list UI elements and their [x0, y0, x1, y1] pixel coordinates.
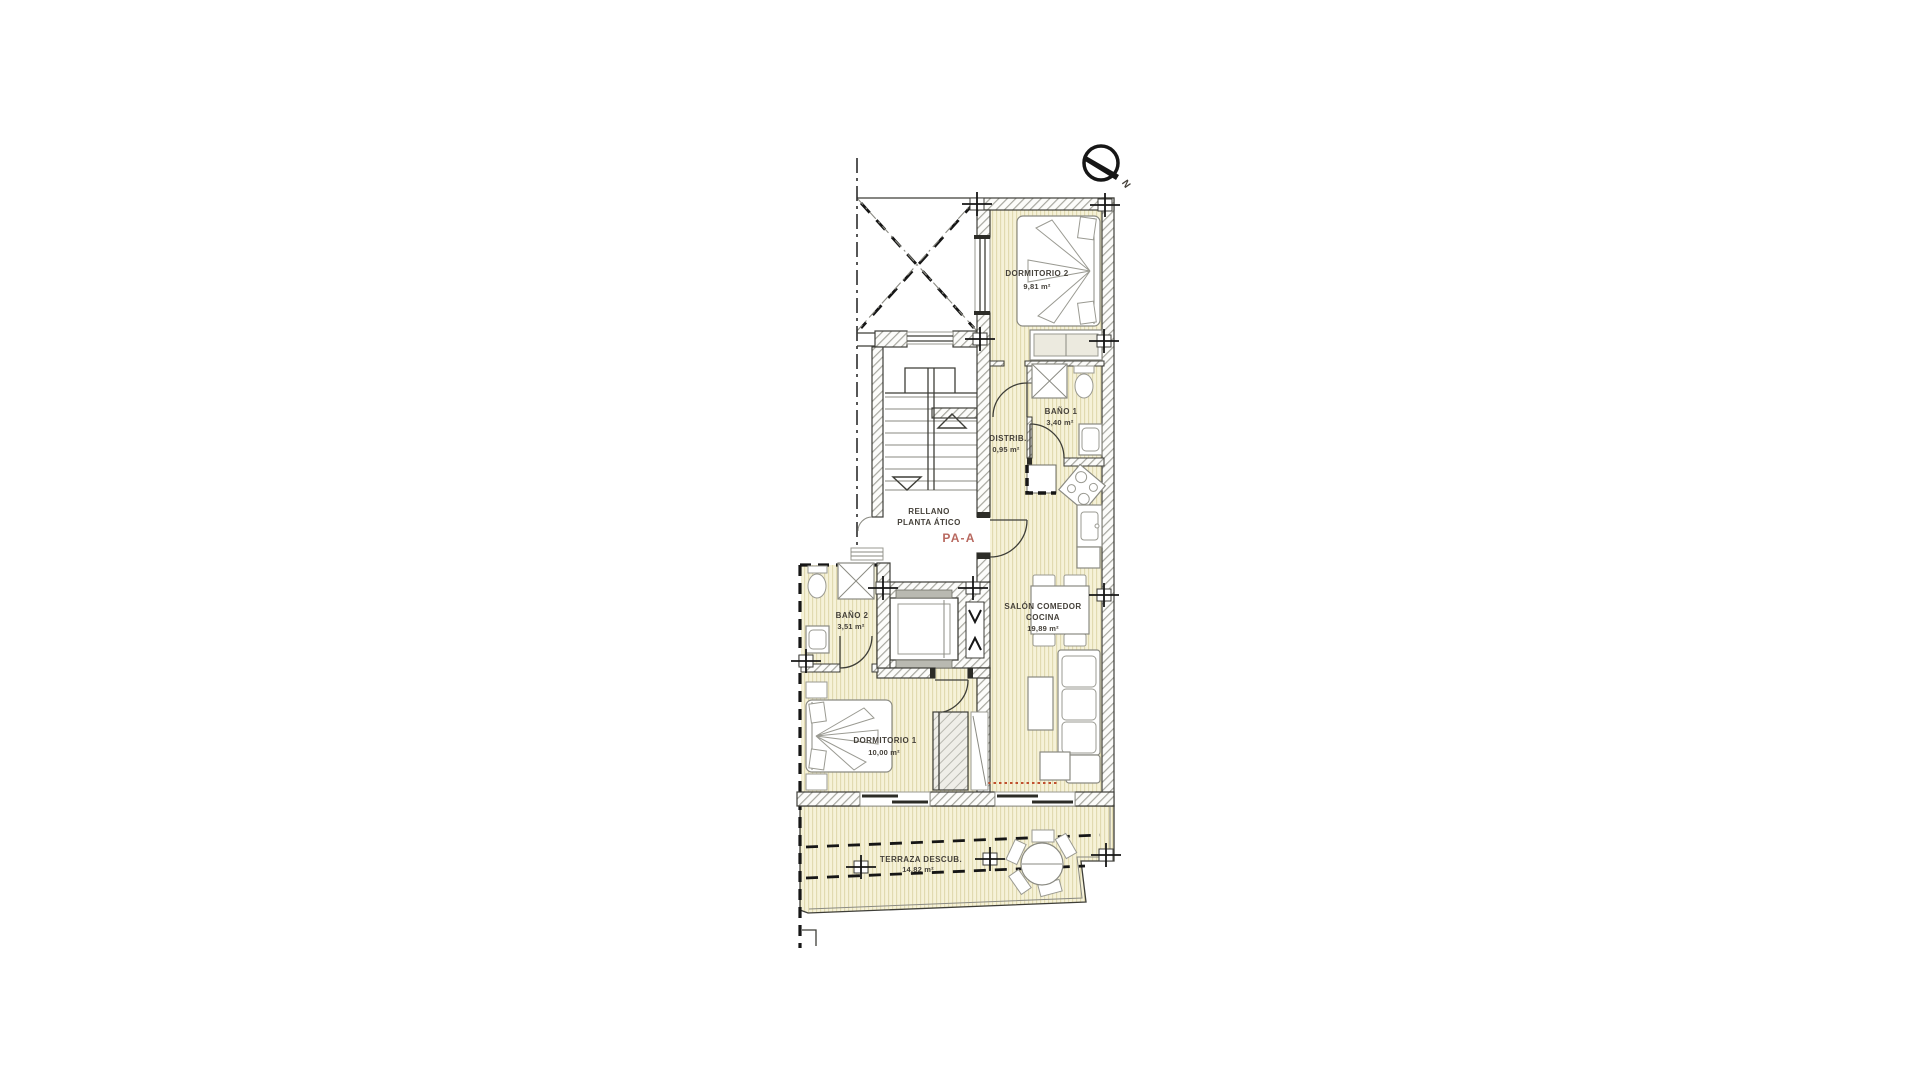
floor-plan-page: N DORMITORIO 2 9,81 m² BAÑO 1 3,40 m² DI…: [0, 0, 1920, 1080]
label-terraza: TERRAZA DESCUB.: [880, 855, 962, 864]
dormitorio1-wardrobe: [933, 712, 988, 790]
area-bano1: 3,40 m²: [1046, 418, 1074, 427]
stair-window: [907, 332, 953, 344]
label-rellano-line2: PLANTA ÁTICO: [897, 518, 960, 527]
landing-cabinet: [851, 548, 883, 560]
north-label: N: [1119, 178, 1132, 190]
dormitorio2-patio-window: [974, 235, 990, 315]
area-dormitorio1: 10,00 m²: [868, 748, 900, 757]
stairwell: [857, 331, 977, 531]
area-salon: 19,89 m²: [1027, 624, 1059, 633]
elevator-door-marks: [966, 602, 984, 658]
dormitorio2-wardrobe: [1030, 330, 1102, 360]
toilet-icon: [808, 566, 827, 598]
coffee-table: [1028, 677, 1053, 730]
stair-upper-flight: [885, 368, 977, 393]
area-dormitorio2: 9,81 m²: [1023, 282, 1051, 291]
sink-counter: [1077, 505, 1102, 568]
washbasin-icon: [806, 626, 829, 653]
label-distrib: DISTRIB.: [989, 434, 1026, 443]
toilet-icon: [1074, 366, 1094, 398]
label-bano2: BAÑO 2: [836, 611, 869, 620]
washbasin-icon: [1079, 424, 1102, 455]
salon-terrace-window: [995, 792, 1075, 806]
area-bano2: 3,51 m²: [837, 622, 865, 631]
label-salon-line2: COCINA: [1026, 613, 1060, 622]
nightstand: [806, 682, 827, 698]
dormitorio1-terrace-window: [860, 792, 930, 806]
label-dormitorio2: DORMITORIO 2: [1005, 269, 1068, 278]
patio-void: [857, 198, 977, 331]
duct-shaft: [1027, 465, 1056, 493]
label-rellano-line1: RELLANO: [908, 507, 949, 516]
floor-plan-drawing: N DORMITORIO 2 9,81 m² BAÑO 1 3,40 m² DI…: [0, 0, 1920, 1080]
area-terraza: 14,82 m²: [902, 865, 934, 874]
label-bano1: BAÑO 1: [1045, 407, 1078, 416]
nightstand: [806, 774, 827, 790]
label-dormitorio1: DORMITORIO 1: [853, 736, 916, 745]
side-table: [1040, 752, 1070, 780]
stair-arrow-down: [893, 477, 921, 490]
north-compass-icon: N: [1084, 146, 1132, 190]
label-salon-line1: SALÓN COMEDOR: [1004, 602, 1081, 611]
label-unit-code: PA-A: [942, 531, 975, 545]
area-distrib: 0,95 m²: [992, 445, 1020, 454]
